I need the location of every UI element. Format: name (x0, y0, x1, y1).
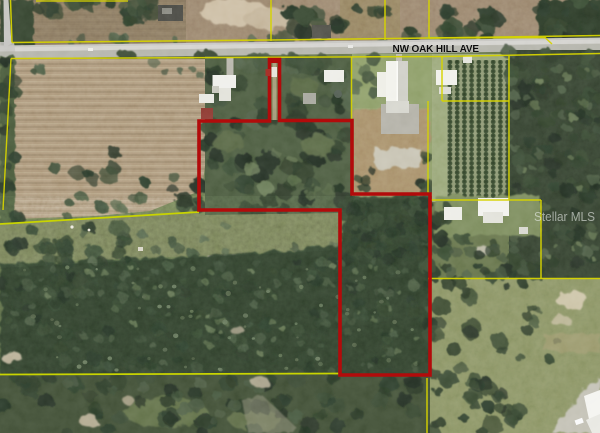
svg-text:NW OAK HILL AVE: NW OAK HILL AVE (393, 44, 480, 55)
svg-text:Stellar MLS: Stellar MLS (534, 209, 595, 224)
